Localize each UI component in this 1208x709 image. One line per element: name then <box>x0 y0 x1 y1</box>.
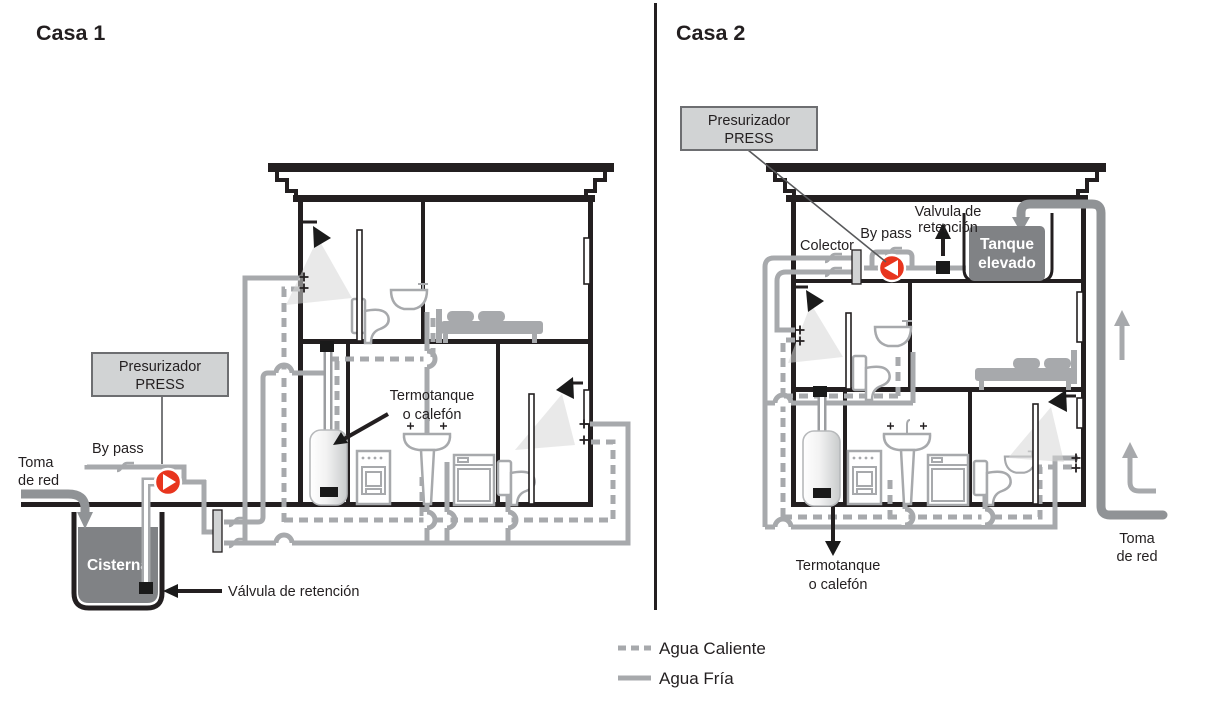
diagram-canvas: Cisterna <box>0 0 1208 709</box>
casa2-section: Tanque elevado Valvula de retención Pres… <box>676 21 1163 593</box>
sink-icon <box>391 284 428 309</box>
casa2-bypass-label: By pass <box>860 226 912 242</box>
casa2-valvula-label-line2: retención <box>918 220 978 236</box>
casa1-bath-window <box>584 390 590 424</box>
arrow-up-icon <box>1114 310 1130 326</box>
casa1-bed <box>436 309 543 343</box>
casa2-title: Casa 2 <box>676 21 745 45</box>
presurizador-label-line1: Presurizador <box>708 113 790 129</box>
shower-spray <box>286 238 352 305</box>
casa1-upper-bathroom <box>286 222 428 343</box>
casa1-bedroom-window <box>584 238 590 284</box>
casa1-roof <box>268 163 614 172</box>
section-divider <box>654 3 657 610</box>
casa2-bath-window <box>1077 398 1083 428</box>
casa2-bedroom-window <box>1077 292 1083 342</box>
tanque-label-line2: elevado <box>978 255 1036 272</box>
shower-spray <box>515 394 575 450</box>
toilet-icon <box>974 461 1011 505</box>
casa2-toma-label-line2: de red <box>1116 549 1157 565</box>
shower-head-icon <box>313 226 331 248</box>
casa2-termo-label-line2: o calefón <box>809 577 868 593</box>
casa1-section: Cisterna <box>18 21 628 608</box>
check-valve-icon <box>936 261 950 274</box>
arrow-up-icon <box>1122 442 1138 458</box>
casa1-termo-label-line2: o calefón <box>403 407 462 423</box>
dishwasher-icon <box>928 455 968 505</box>
casa2-bed <box>975 350 1077 390</box>
casa2-termo-label-line1: Termotanque <box>796 558 881 574</box>
tanque-label-line1: Tanque <box>980 236 1034 253</box>
casa1-left-wall <box>298 200 303 505</box>
presurizador-label-line2: PRESS <box>724 131 773 147</box>
legend-cold-label: Agua Fría <box>659 669 734 688</box>
casa2-mid-bathroom <box>788 287 912 400</box>
casa1-termotanque <box>310 341 347 505</box>
shower-spray <box>788 304 843 363</box>
shower-screen <box>357 230 362 341</box>
sink-icon <box>875 321 912 346</box>
casa1-press-valve-icon <box>155 469 181 495</box>
casa2-right-wall <box>1081 200 1086 505</box>
kitchen-sink-icon <box>884 420 930 504</box>
toilet-icon <box>853 356 890 400</box>
casa2-colector-label: Colector <box>800 238 854 254</box>
kitchen-sink-icon <box>404 420 450 504</box>
casa1-collector-bar <box>213 510 222 552</box>
casa1-title: Casa 1 <box>36 21 105 45</box>
casa2-termotanque-callout: Termotanque o calefón <box>796 507 881 593</box>
arrow-left-icon <box>163 584 178 598</box>
casa1-valvula-callout: Válvula de retención <box>163 584 359 600</box>
legend-hot-label: Agua Caliente <box>659 639 766 658</box>
shower-screen <box>846 313 851 389</box>
dishwasher-icon <box>454 455 494 505</box>
shower-screen <box>1033 404 1038 504</box>
arrow-down-icon <box>825 541 841 556</box>
stove-icon <box>848 451 881 504</box>
casa2-toma-label-line1: Toma <box>1119 531 1155 547</box>
casa1-toma-pipe <box>21 494 93 529</box>
stove-icon <box>357 451 390 504</box>
casa2-mid-floor <box>791 387 1081 392</box>
casa2-flow-arrows <box>1114 310 1156 491</box>
cisterna-label: Cisterna <box>87 557 149 574</box>
shower-head-icon <box>806 290 824 312</box>
shower-screen <box>529 394 534 504</box>
casa1-bypass-label: By pass <box>92 441 144 457</box>
casa2-valvula-label-line1: Valvula de <box>915 204 982 220</box>
casa1-termo-label-line1: Termotanque <box>390 388 475 404</box>
casa1-valvula-label: Válvula de retención <box>228 584 359 600</box>
legend: Agua Caliente Agua Fría <box>618 639 766 688</box>
casa1-foot-check-valve <box>139 582 153 594</box>
casa1-toma-label-line1: Toma <box>18 455 54 471</box>
casa2-collector-bar <box>852 250 861 284</box>
casa2-roof <box>766 163 1106 172</box>
casa1-toma-label-line2: de red <box>18 473 59 489</box>
plumbing-diagram: Cisterna <box>0 0 1208 709</box>
presurizador-label-line2: PRESS <box>135 377 184 393</box>
presurizador-label-line1: Presurizador <box>119 359 201 375</box>
shower-head-icon <box>556 377 574 399</box>
